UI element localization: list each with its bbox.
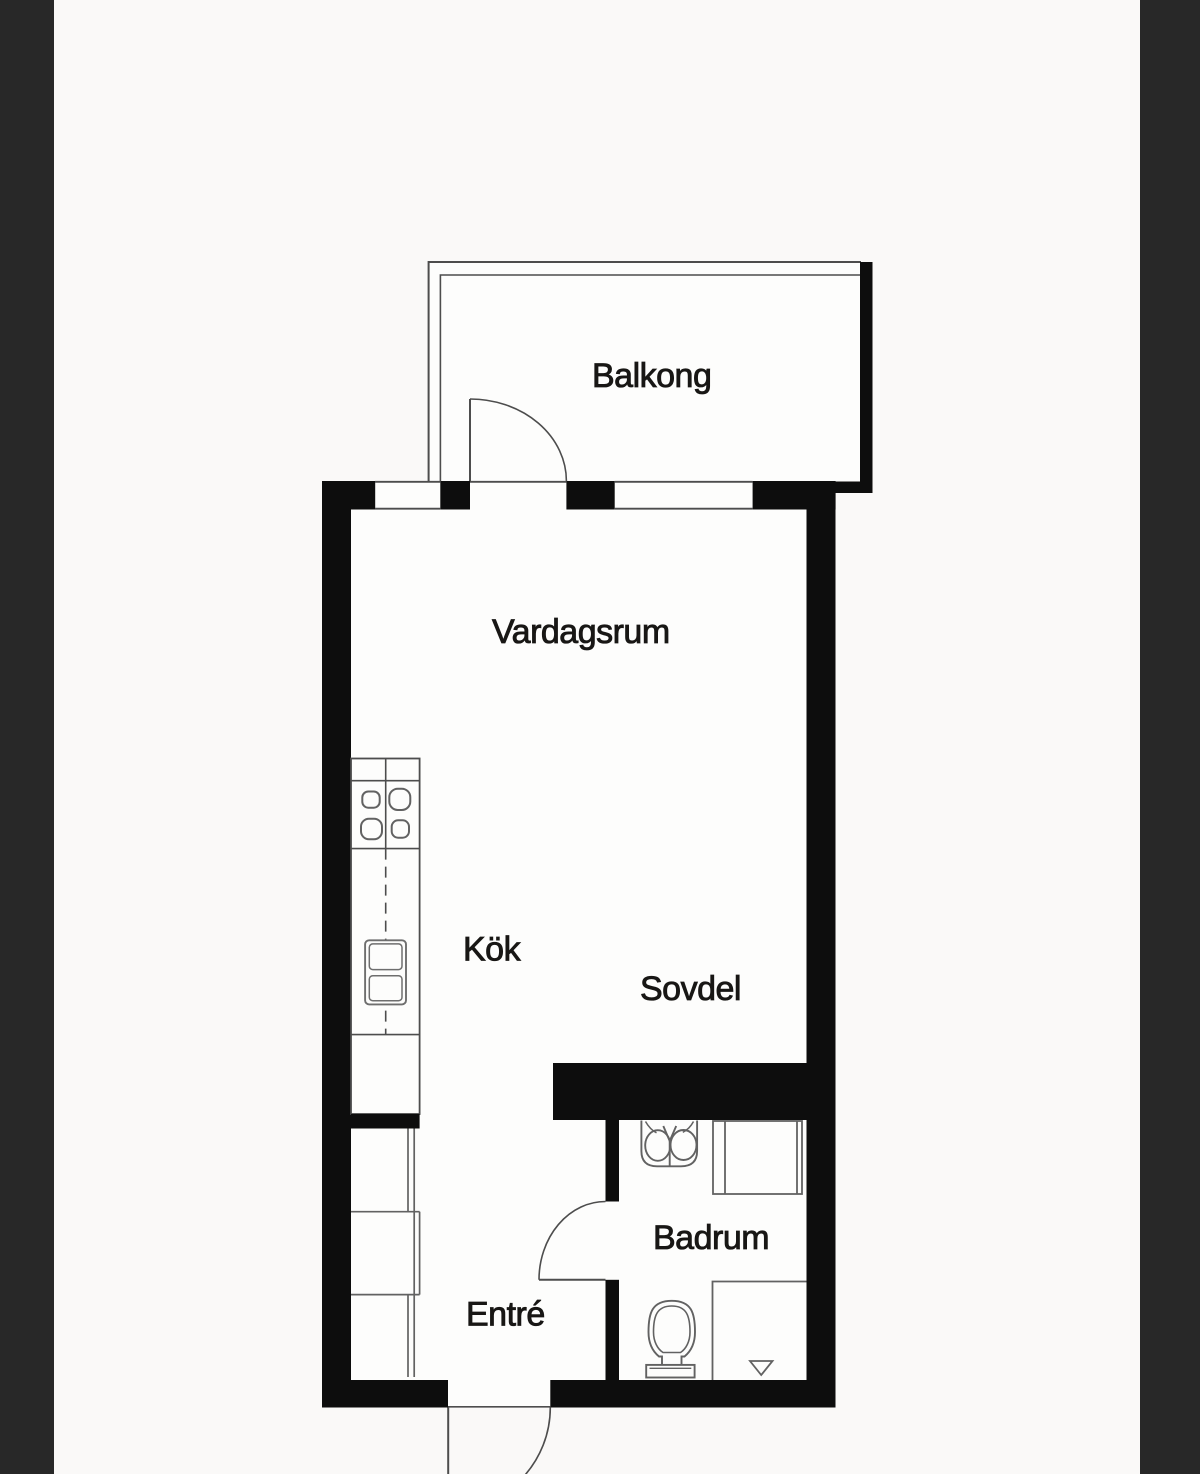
svg-text:Vardagsrum: Vardagsrum: [492, 613, 670, 651]
svg-text:Sovdel: Sovdel: [640, 970, 741, 1008]
svg-text:Balkong: Balkong: [592, 357, 711, 395]
svg-text:Kök: Kök: [463, 931, 522, 969]
svg-text:Entré: Entré: [466, 1296, 545, 1334]
svg-text:Badrum: Badrum: [653, 1219, 769, 1257]
